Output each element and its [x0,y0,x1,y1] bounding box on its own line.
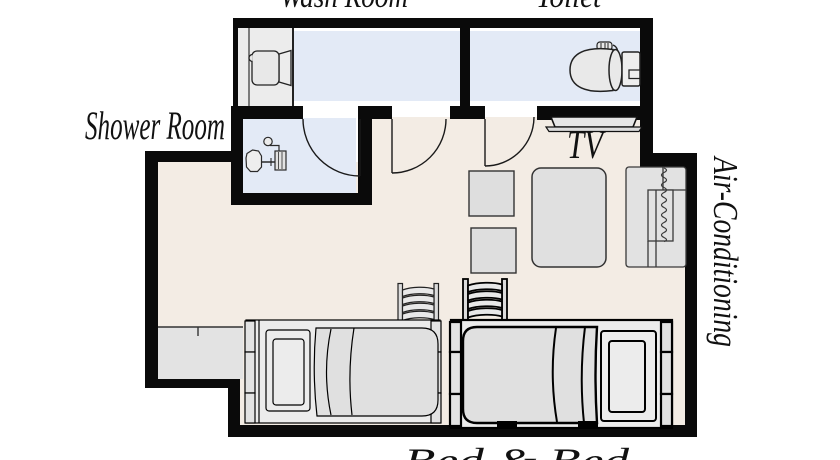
svg-text:Wash Room: Wash Room [280,0,408,14]
svg-text:Shower Room: Shower Room [85,103,225,148]
svg-text:TV: TV [567,122,607,167]
svg-text:Air-Conditioning: Air-Conditioning [706,155,745,347]
svg-text:Toilet: Toilet [536,0,602,14]
svg-text:Bed & Bed: Bed & Bed [404,441,630,460]
